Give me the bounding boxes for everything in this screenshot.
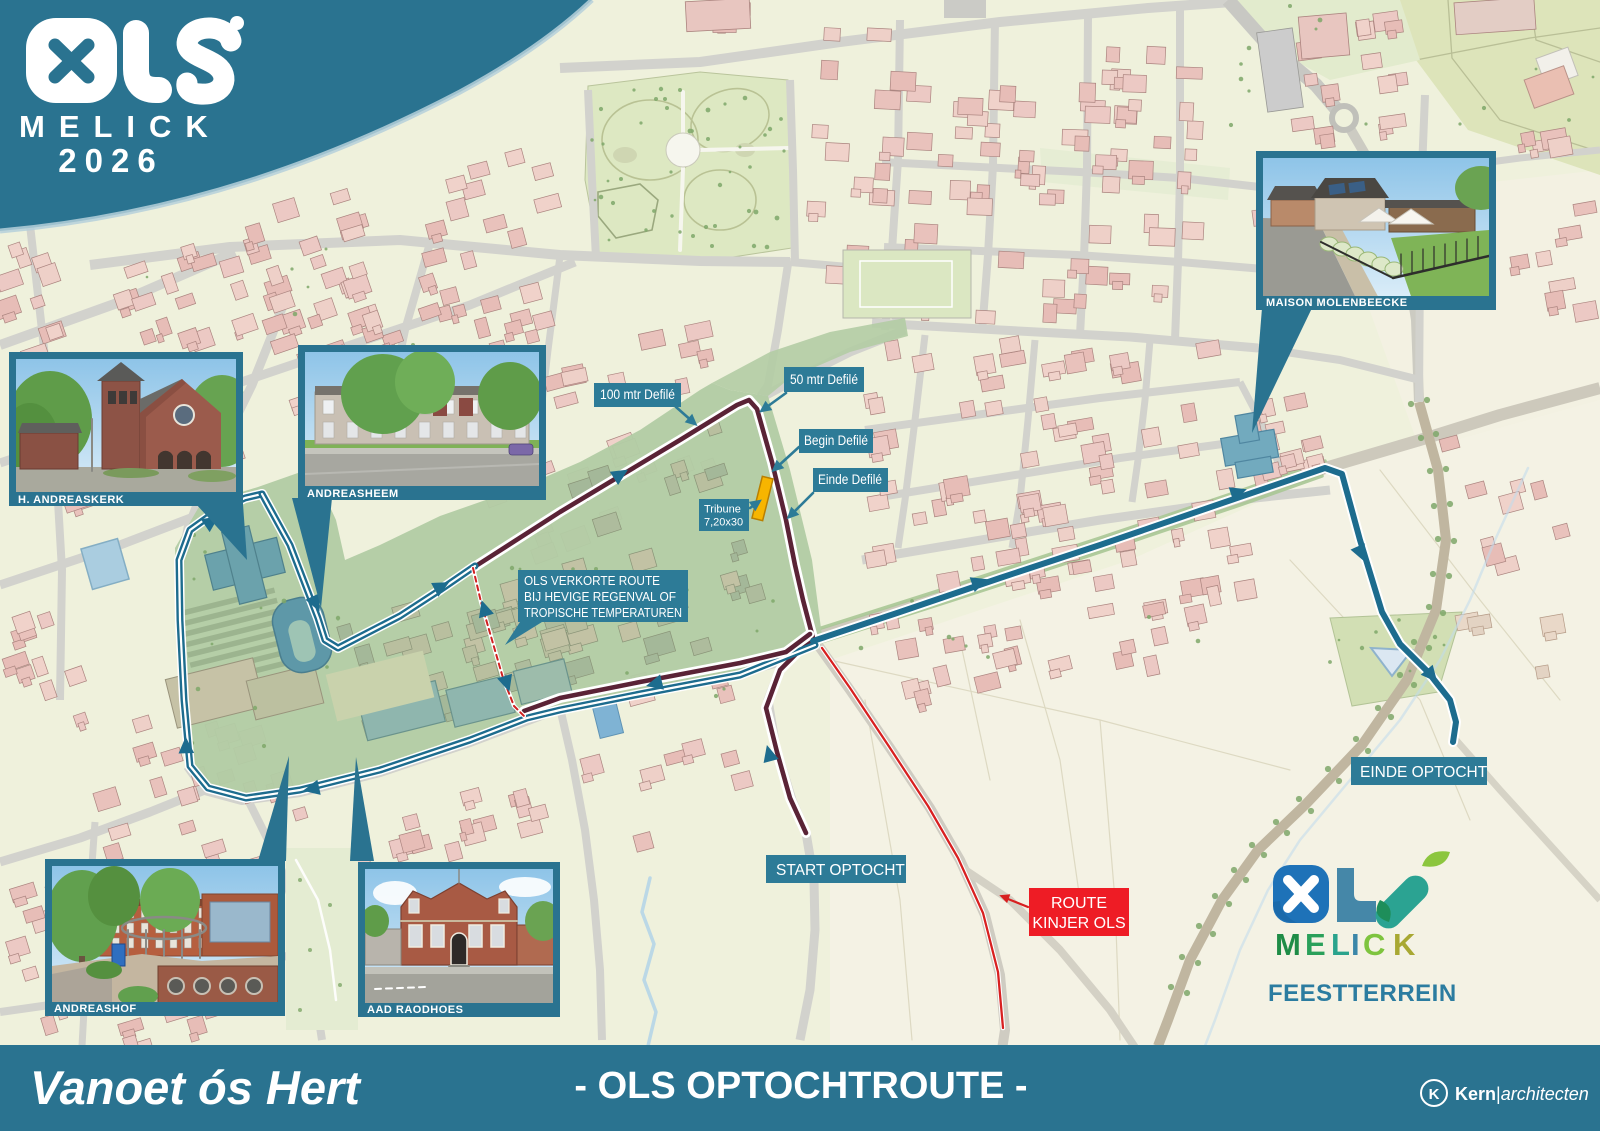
svg-text:Kern|architecten: Kern|architecten xyxy=(1455,1084,1589,1104)
svg-text:K: K xyxy=(1429,1086,1440,1103)
svg-text:ANDREASHOF: ANDREASHOF xyxy=(54,1003,137,1015)
svg-text:C: C xyxy=(1363,927,1385,962)
svg-text:Einde Defilé: Einde Defilé xyxy=(818,472,882,487)
svg-text:OLS VERKORTE ROUTE: OLS VERKORTE ROUTE xyxy=(524,573,660,588)
svg-text:I: I xyxy=(1351,927,1360,962)
svg-text:AAD RAODHOES: AAD RAODHOES xyxy=(367,1004,463,1016)
svg-text:H. ANDREASKERK: H. ANDREASKERK xyxy=(18,494,124,506)
svg-text:M: M xyxy=(1275,927,1301,962)
svg-text:E: E xyxy=(1305,927,1326,962)
svg-text:2026: 2026 xyxy=(58,142,163,179)
svg-text:FEESTTERREIN: FEESTTERREIN xyxy=(1268,980,1457,1007)
svg-text:7,20x30: 7,20x30 xyxy=(704,517,743,529)
svg-text:Tribune: Tribune xyxy=(704,504,741,516)
svg-text:TROPISCHE TEMPERATUREN: TROPISCHE TEMPERATUREN xyxy=(524,605,682,620)
svg-text:Vanoet ós Hert: Vanoet ós Hert xyxy=(30,1061,362,1114)
svg-text:MELICK: MELICK xyxy=(19,109,222,144)
svg-text:K: K xyxy=(1393,927,1416,962)
svg-text:50 mtr Defilé: 50 mtr Defilé xyxy=(790,372,858,387)
svg-text:ROUTE: ROUTE xyxy=(1051,895,1107,912)
svg-text:100 mtr Defilé: 100 mtr Defilé xyxy=(600,387,675,402)
svg-text:ANDREASHEEM: ANDREASHEEM xyxy=(307,488,399,500)
svg-text:MAISON MOLENBEECKE: MAISON MOLENBEECKE xyxy=(1266,297,1408,309)
svg-text:L: L xyxy=(1331,927,1350,962)
svg-text:KINJER OLS: KINJER OLS xyxy=(1032,915,1125,932)
svg-text:Begin Defilé: Begin Defilé xyxy=(804,433,868,448)
svg-text:- OLS OPTOCHTROUTE -: - OLS OPTOCHTROUTE - xyxy=(574,1065,1027,1107)
svg-text:BIJ HEVIGE REGENVAL OF: BIJ HEVIGE REGENVAL OF xyxy=(524,589,676,604)
svg-text:START OPTOCHT: START OPTOCHT xyxy=(776,862,905,879)
svg-text:EINDE OPTOCHT: EINDE OPTOCHT xyxy=(1360,764,1488,781)
